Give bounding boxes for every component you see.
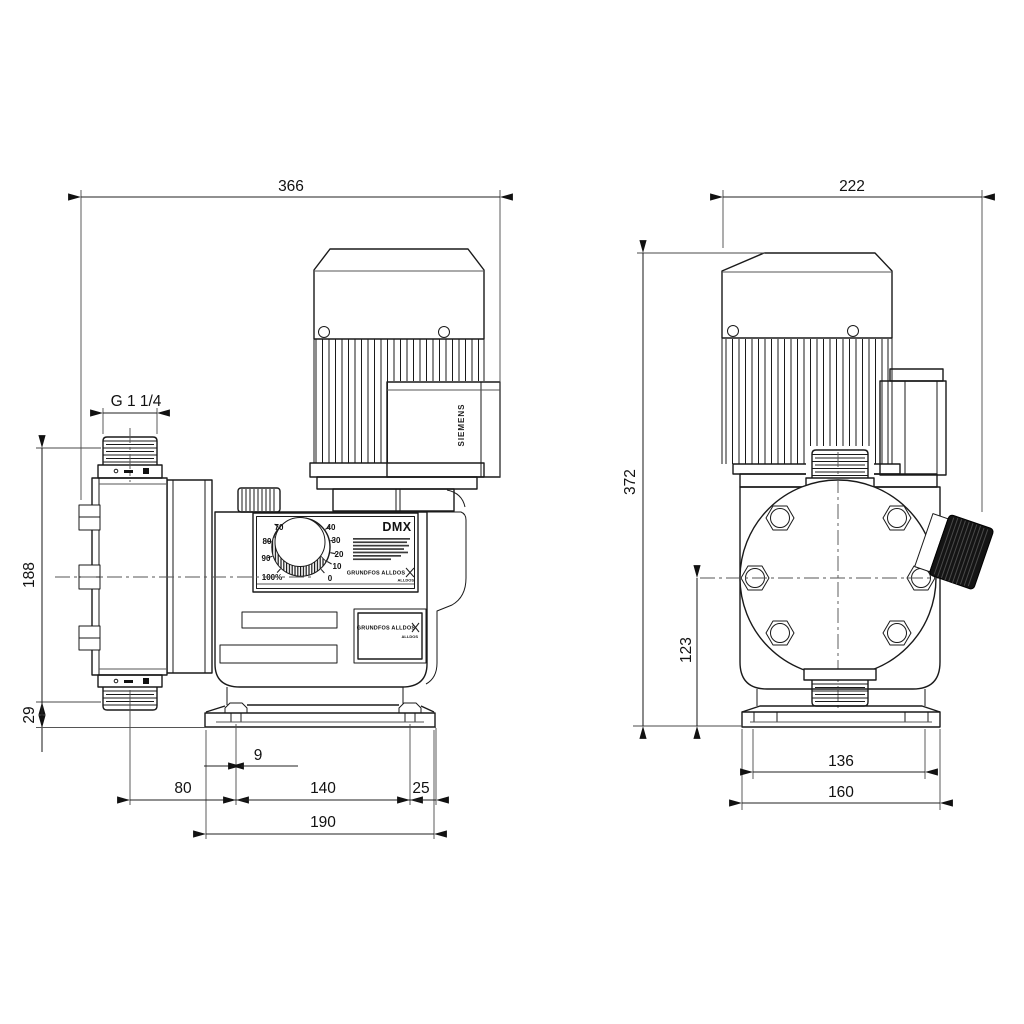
dial-label-90: 90 xyxy=(262,554,271,563)
foot-bolt-right xyxy=(399,703,421,713)
dim-overall-width-front: 222 xyxy=(839,178,865,195)
dial-label-30: 30 xyxy=(332,536,341,545)
model-label: DMX xyxy=(382,520,411,534)
dial-label-40: 40 xyxy=(327,523,336,532)
dim-thread-size: G 1 1/4 xyxy=(111,393,162,410)
dial-label-20: 20 xyxy=(335,550,344,559)
dim-slot-spacing-front: 136 xyxy=(828,753,854,770)
brand-wordmark: GRUNDFOS ALLDOS xyxy=(357,626,416,632)
dial-label-0: 0 xyxy=(328,574,333,583)
brand-sub-label: ALLDOS xyxy=(398,578,415,583)
foot-bolt-left xyxy=(225,703,247,713)
dim-center-height: 123 xyxy=(678,637,695,663)
dial-label-70: 70 xyxy=(275,523,284,532)
pump-dimensional-drawing: SIEMENS 100% 90 80 70 40 30 xyxy=(0,0,1024,1024)
dimensional-drawing-page: SIEMENS 100% 90 80 70 40 30 xyxy=(0,0,1024,1024)
dim-base-width-front: 160 xyxy=(828,784,854,801)
dial-label-10: 10 xyxy=(333,562,342,571)
dim-head-to-bolt: 80 xyxy=(174,780,192,797)
dim-below-base: 29 xyxy=(21,706,38,723)
brand-sub-label: ALLDOS xyxy=(402,634,419,639)
head-bolt-tabs xyxy=(79,505,100,650)
dim-base-length: 190 xyxy=(310,814,336,831)
dim-overall-width-side: 366 xyxy=(278,178,304,195)
control-panel: 100% 90 80 70 40 30 20 10 0 DMX xyxy=(253,513,418,592)
dim-overall-height: 372 xyxy=(622,469,639,495)
motor-brand-label: SIEMENS xyxy=(457,403,466,446)
dial-label-100: 100% xyxy=(262,573,282,582)
thread-top-ridges xyxy=(812,455,868,476)
dim-bolt-to-edge: 25 xyxy=(412,780,429,797)
dim-head-height: 188 xyxy=(21,562,38,588)
dial-label-80: 80 xyxy=(263,537,272,546)
valve-ring-bottom-front xyxy=(804,669,876,680)
dim-slot-width: 9 xyxy=(254,747,263,764)
head-body xyxy=(92,478,167,675)
dim-bolt-spacing: 140 xyxy=(310,780,336,797)
brand-wordmark: GRUNDFOS ALLDOS xyxy=(347,571,406,577)
